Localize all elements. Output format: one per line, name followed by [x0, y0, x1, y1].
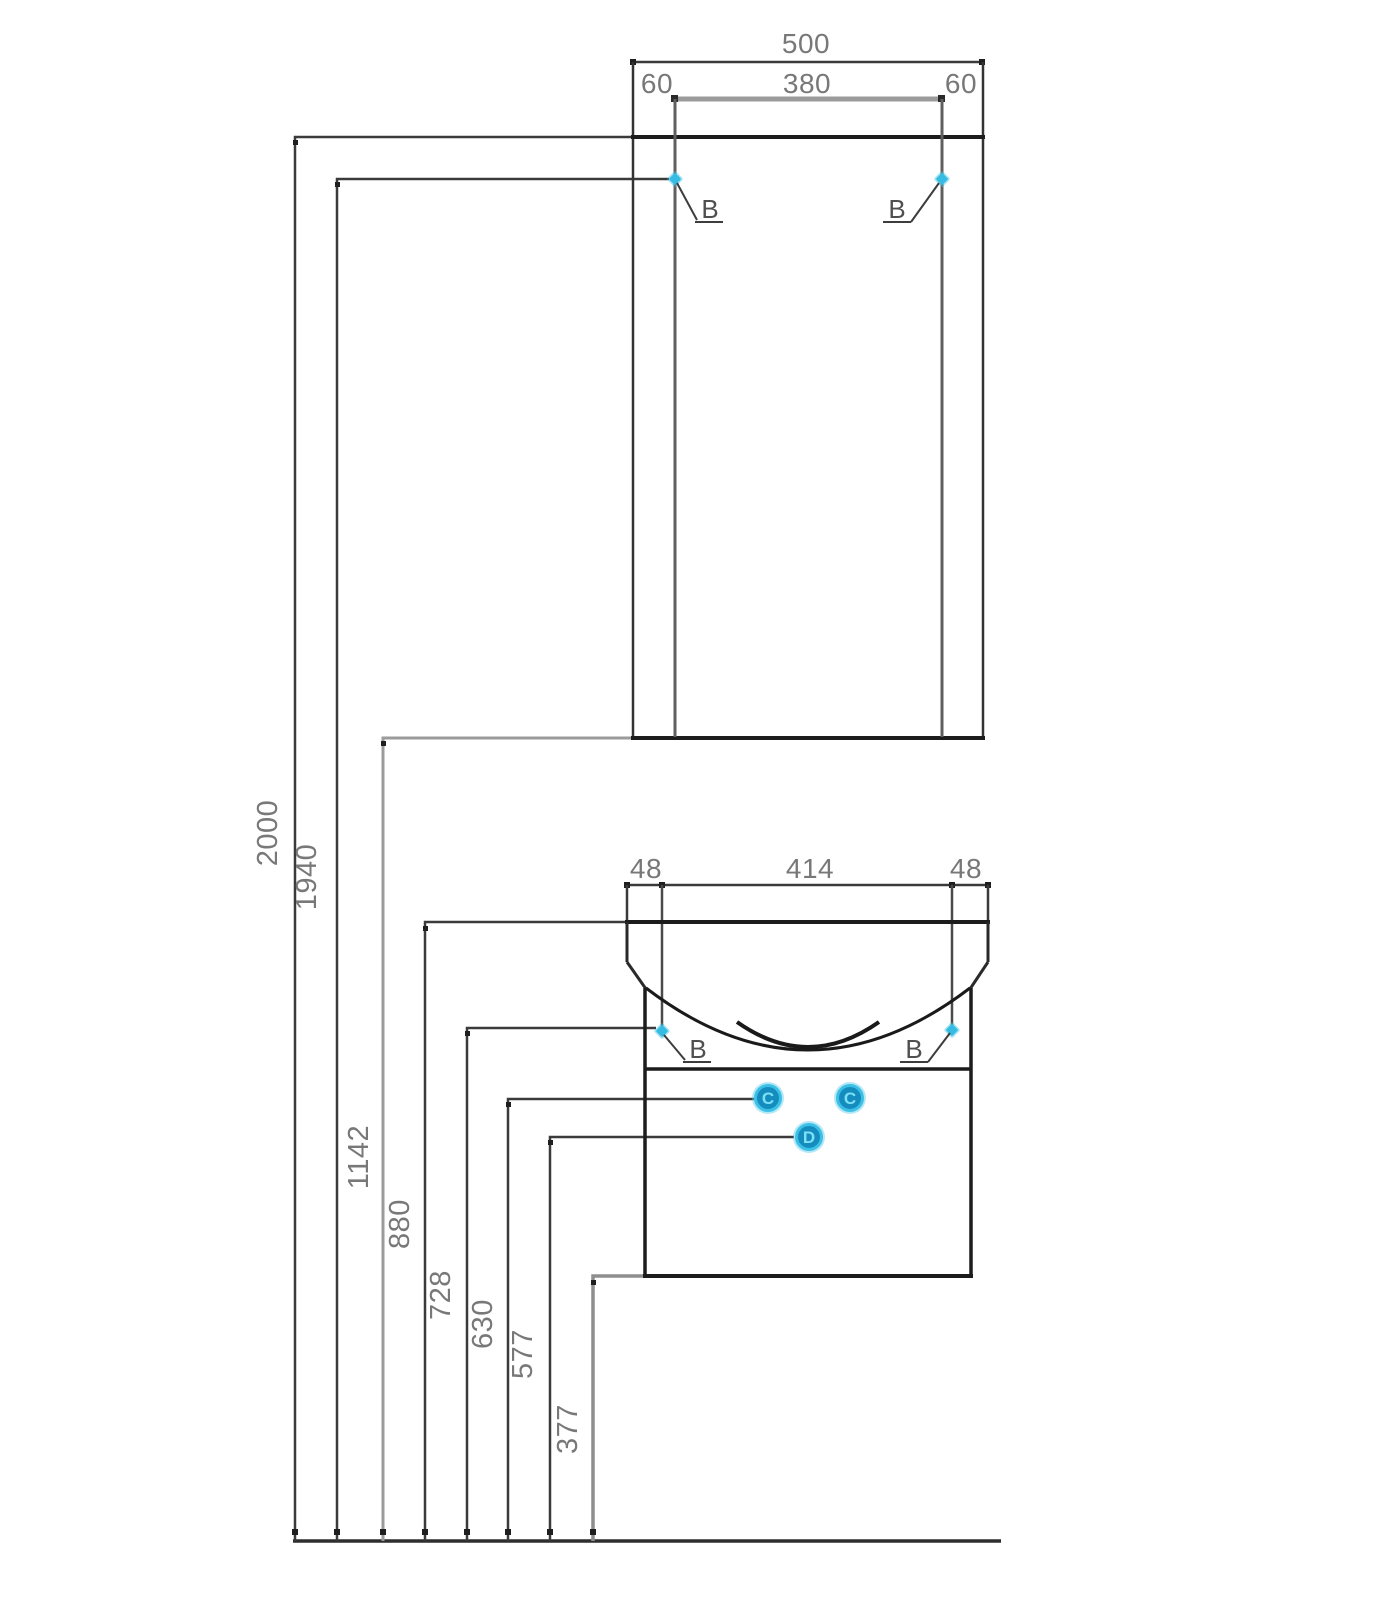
- vanity-hinge-point-right-icon: [946, 1024, 959, 1037]
- callout-letter-c-right: C: [844, 1089, 856, 1108]
- technical-drawing-canvas: 2000 1940 1142 880 728 630 577 377 500 6…: [0, 0, 1400, 1600]
- basin-left-corner: [627, 962, 646, 989]
- label-mirror-width-total: 500: [782, 28, 830, 59]
- label-height-728: 728: [425, 1270, 457, 1320]
- label-mirror-margin-left: 60: [641, 68, 673, 99]
- label-height-577: 577: [507, 1329, 539, 1379]
- washbasin-unit: 48 414 48 B B: [624, 853, 991, 1276]
- vanity-hinge-point-left-icon: [656, 1025, 669, 1038]
- label-height-2000: 2000: [252, 800, 284, 867]
- label-height-630: 630: [467, 1299, 499, 1349]
- callout-letter-c-left: C: [762, 1089, 774, 1108]
- height-dimension-lines: [295, 137, 794, 1541]
- mirror-hinge-callout-left: B: [701, 194, 718, 224]
- label-mirror-margin-right: 60: [945, 68, 977, 99]
- dim-line-1940: [337, 179, 669, 1541]
- dim-line-2000: [295, 137, 633, 1541]
- mirror-cabinet: 500 60 380 60 B B: [630, 28, 985, 738]
- vanity-hinge-callout-right: B: [905, 1034, 922, 1064]
- mirror-hinge-callout-right: B: [888, 194, 905, 224]
- label-basin-margin-right: 48: [950, 853, 982, 884]
- callout-letter-d: D: [803, 1128, 815, 1147]
- dim-line-577: [550, 1137, 794, 1541]
- vanity-hinge-callout-left: B: [689, 1034, 706, 1064]
- label-height-1142: 1142: [343, 1125, 375, 1189]
- label-height-880: 880: [384, 1199, 416, 1249]
- component-callout-circles: C C D: [752, 1082, 866, 1153]
- mirror-hinge-point-left-icon: [669, 173, 682, 186]
- furniture-dimension-drawing: 2000 1940 1142 880 728 630 577 377 500 6…: [0, 0, 1400, 1600]
- height-labels: 2000 1940 1142 880 728 630 577 377: [252, 800, 584, 1454]
- label-mirror-door-width: 380: [783, 68, 831, 99]
- dim-line-630: [508, 1099, 754, 1541]
- label-basin-margin-left: 48: [630, 853, 662, 884]
- label-height-377: 377: [552, 1404, 584, 1454]
- dim-line-377: [593, 1276, 645, 1541]
- dim-line-880: [425, 922, 627, 1541]
- dim-line-728: [467, 1028, 656, 1541]
- label-height-1940: 1940: [291, 844, 323, 911]
- basin-right-corner: [970, 962, 988, 989]
- label-basin-width: 414: [786, 853, 834, 884]
